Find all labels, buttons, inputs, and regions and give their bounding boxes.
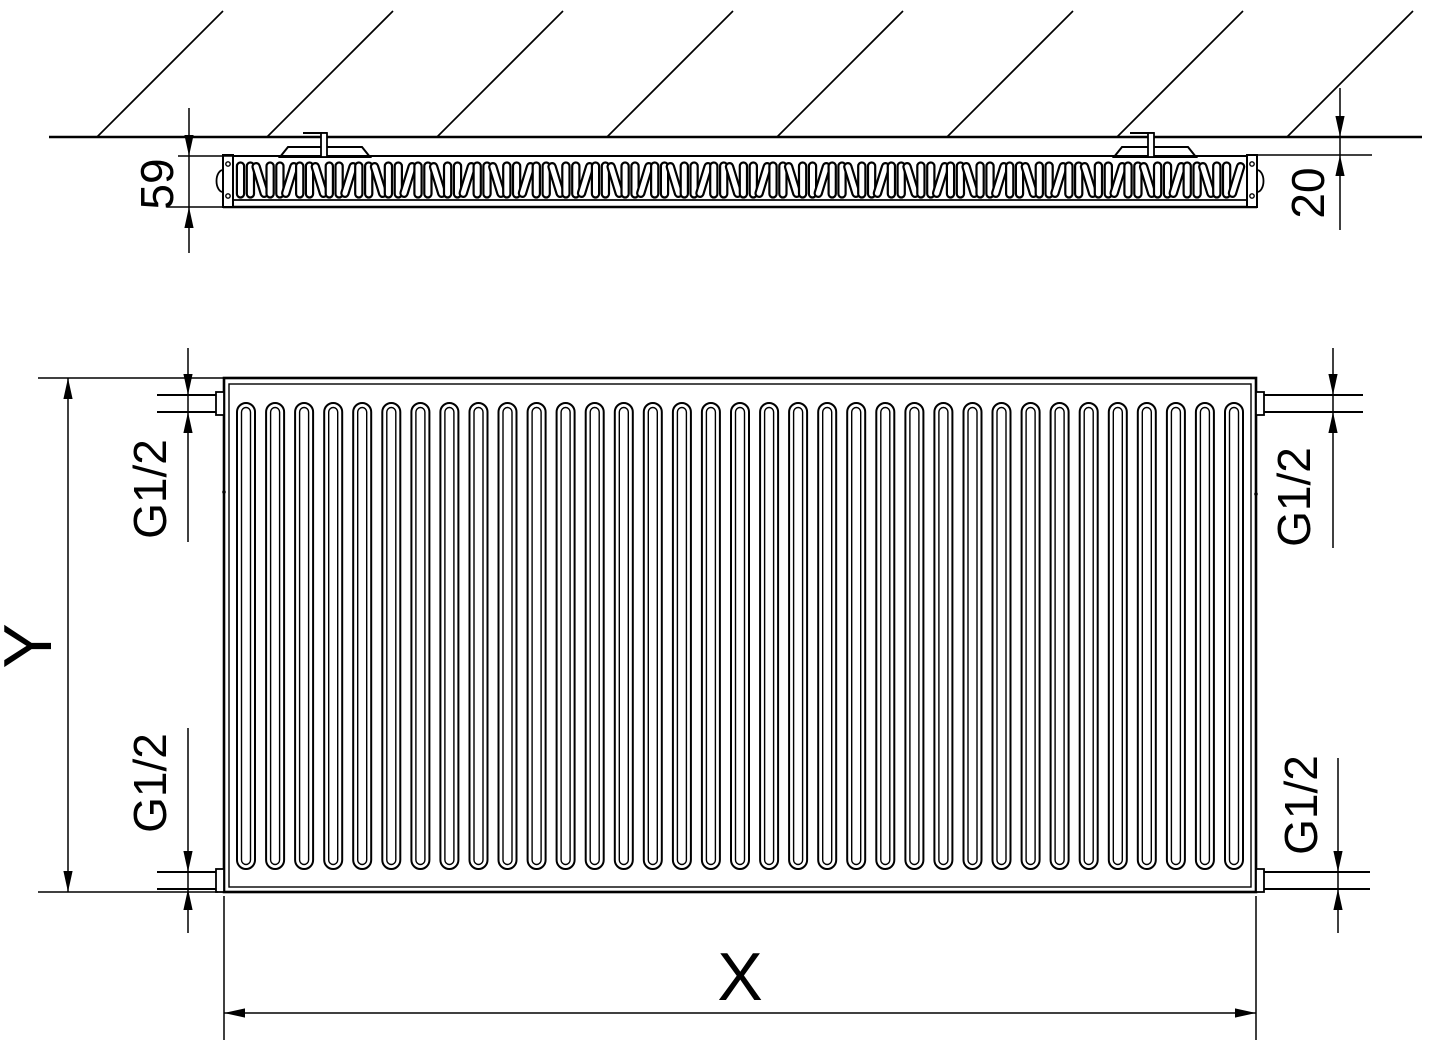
connection-stub-top-right: [1256, 392, 1363, 415]
front-view-corrugations: [237, 403, 1243, 869]
top-view-fin-coil: [237, 162, 1245, 198]
front-view-outline: [224, 378, 1256, 892]
weld-mark-right: [1254, 492, 1258, 496]
dim-label-height: Y: [0, 623, 62, 668]
wall-hatching: [97, 11, 1413, 137]
connection-label-bottom-left: G1/2: [127, 733, 173, 833]
connection-label-bottom-right: G1/2: [1278, 755, 1324, 855]
connection-stub-bottom-left: [157, 869, 224, 892]
connection-stub-top-left: [157, 392, 224, 415]
top-view-end-cap-left: [217, 155, 234, 207]
top-view: [49, 11, 1422, 253]
connection-label-top-right: G1/2: [1271, 447, 1317, 547]
connection-stub-bottom-right: [1256, 869, 1370, 892]
weld-mark-left: [222, 490, 226, 494]
dim-label-width: X: [717, 943, 762, 1011]
connection-label-top-left: G1/2: [127, 439, 173, 539]
top-view-end-cap-right: [1247, 155, 1264, 207]
front-view: [38, 348, 1370, 1040]
dim-label-wall-gap: 20: [1285, 167, 1331, 218]
dim-connection-lines: [188, 348, 1338, 933]
technical-drawing-canvas: 59 20 Y X G1/2 G1/2 G1/2 G1/2: [0, 0, 1431, 1053]
dim-label-depth: 59: [134, 158, 180, 209]
radiator-drawing: [0, 0, 1431, 1053]
